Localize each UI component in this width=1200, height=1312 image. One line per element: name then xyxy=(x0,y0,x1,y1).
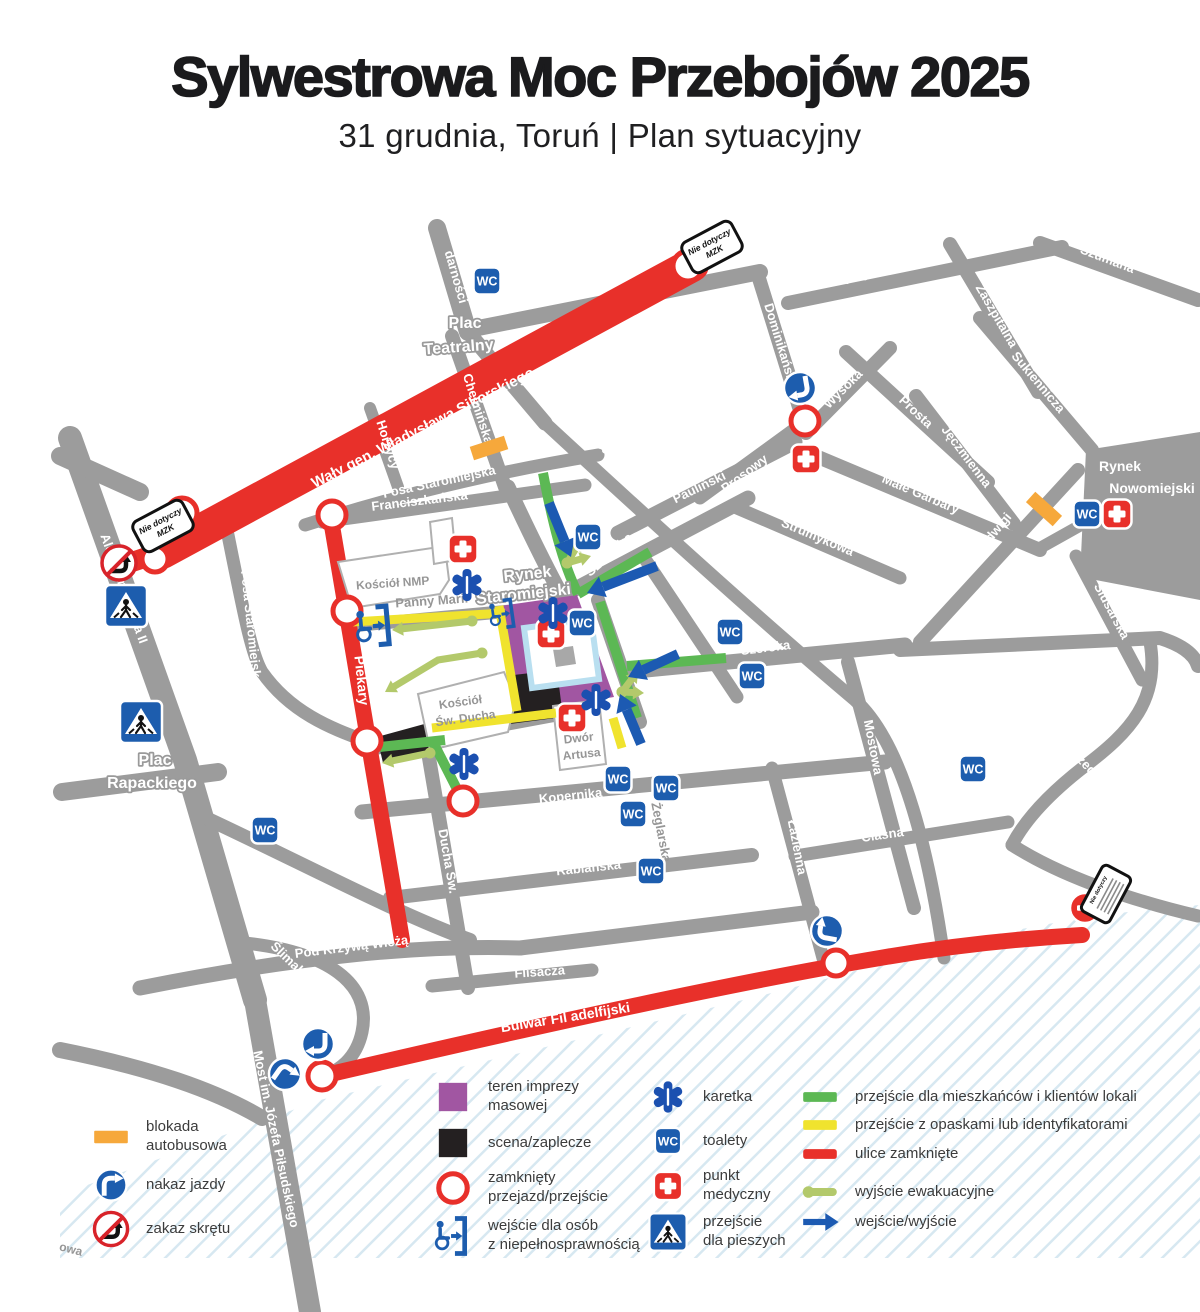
svg-text:WC: WC xyxy=(1077,508,1098,522)
svg-text:WC: WC xyxy=(578,531,599,545)
street-label: Nowomiejski xyxy=(1109,480,1195,496)
wc-icon: WC xyxy=(739,663,766,690)
wc-icon: WC xyxy=(252,817,279,844)
svg-text:WC: WC xyxy=(255,824,276,838)
arrow-dot xyxy=(477,648,488,659)
pedestrian-crossing-icon xyxy=(120,701,162,743)
svg-text:WC: WC xyxy=(720,626,741,640)
place-label: Rynek xyxy=(503,564,553,586)
nakaz-jazdy-icon xyxy=(302,1028,334,1060)
svg-text:WC: WC xyxy=(656,782,677,796)
svg-text:WC: WC xyxy=(608,773,629,787)
medical-cross-icon xyxy=(792,445,821,474)
road xyxy=(432,970,592,986)
wc-icon: WC xyxy=(653,775,680,802)
street-label: Sukiennicza xyxy=(1009,349,1069,417)
place-label: Plac xyxy=(139,752,172,769)
wc-icon: WC xyxy=(638,858,665,885)
arrow-dot xyxy=(562,558,573,569)
street-label: Bankowa xyxy=(621,941,680,961)
wc-icon: WC xyxy=(620,801,647,828)
wc-icon: WC xyxy=(474,268,501,295)
zakaz-skretu-icon xyxy=(102,546,136,580)
pedestrian-crossing-icon xyxy=(105,585,147,627)
arrow-dot xyxy=(467,616,478,627)
wc-icon: WC xyxy=(717,619,744,646)
wc-icon: WC xyxy=(1074,501,1101,528)
closed-passage-icon xyxy=(318,501,346,529)
place-label: Rapackiego xyxy=(107,775,197,792)
wristband-route xyxy=(613,718,622,748)
header: Sylwestrowa Moc Przebojów 2025 31 grudni… xyxy=(0,44,1200,155)
mzk-exemption-sign: Nie dotyczyMZK xyxy=(679,219,744,275)
wc-icon: WC xyxy=(605,766,632,793)
medical-cross-icon xyxy=(1103,500,1132,529)
street-label: Jęczmienna xyxy=(938,422,995,491)
svg-text:WC: WC xyxy=(742,670,763,684)
street-label: Ducha Św. xyxy=(435,828,461,895)
svg-text:WC: WC xyxy=(477,275,498,289)
road xyxy=(1040,243,1198,300)
wc-icon: WC xyxy=(960,756,987,783)
city-map: Aleja Jana Pawła IIWały gen. Władysława … xyxy=(0,0,1200,1312)
place-label: Plac xyxy=(449,315,482,332)
svg-text:WC: WC xyxy=(641,865,662,879)
closed-passage-icon xyxy=(333,597,361,625)
svg-text:WC: WC xyxy=(572,617,593,631)
wc-icon: WC xyxy=(575,524,602,551)
arrow-dot xyxy=(425,748,436,759)
closed-passage-icon xyxy=(308,1062,336,1090)
street-label: Św. xyxy=(1117,386,1139,408)
svg-text:WC: WC xyxy=(963,763,984,777)
street-label: Żeglarska xyxy=(648,801,674,864)
svg-text:WC: WC xyxy=(623,808,644,822)
road xyxy=(60,1050,262,1118)
wc-icon: WC xyxy=(569,610,596,637)
closed-passage-icon xyxy=(823,950,849,976)
closed-passage-icon xyxy=(791,407,819,435)
medical-cross-icon xyxy=(449,535,478,564)
event-map-poster: Sylwestrowa Moc Przebojów 2025 31 grudni… xyxy=(0,0,1200,1312)
closed-passage-icon xyxy=(449,787,477,815)
page-title: Sylwestrowa Moc Przebojów 2025 xyxy=(0,44,1200,109)
street-label: Bulwar Fil adelfijski xyxy=(499,999,631,1035)
wristband-route xyxy=(352,613,505,622)
street-label: Wielkie Garbary xyxy=(979,600,1079,630)
road xyxy=(210,820,470,940)
closed-passage-icon xyxy=(353,727,381,755)
street-label: Rynek xyxy=(1099,458,1141,474)
page-subtitle: 31 grudnia, Toruń | Plan sytuacyjny xyxy=(0,117,1200,155)
